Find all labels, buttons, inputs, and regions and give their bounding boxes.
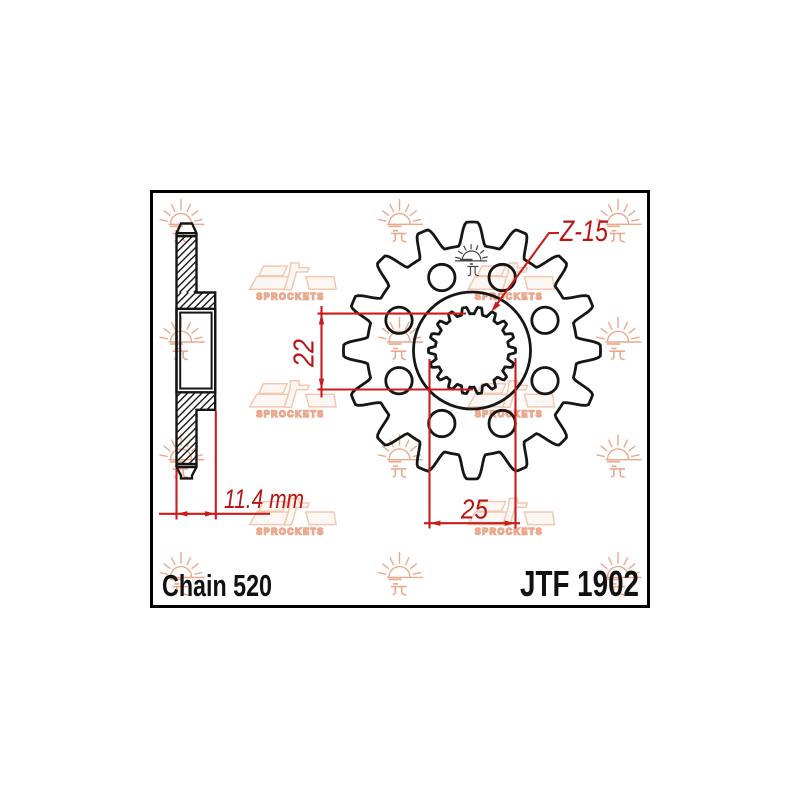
svg-text:25: 25 <box>460 494 488 525</box>
svg-text:11.4 mm: 11.4 mm <box>224 484 304 514</box>
svg-text:JTF 1902: JTF 1902 <box>520 563 639 604</box>
svg-text:22: 22 <box>289 339 321 368</box>
svg-text:Chain 520: Chain 520 <box>162 569 272 603</box>
svg-text:Z-15: Z-15 <box>559 215 608 248</box>
